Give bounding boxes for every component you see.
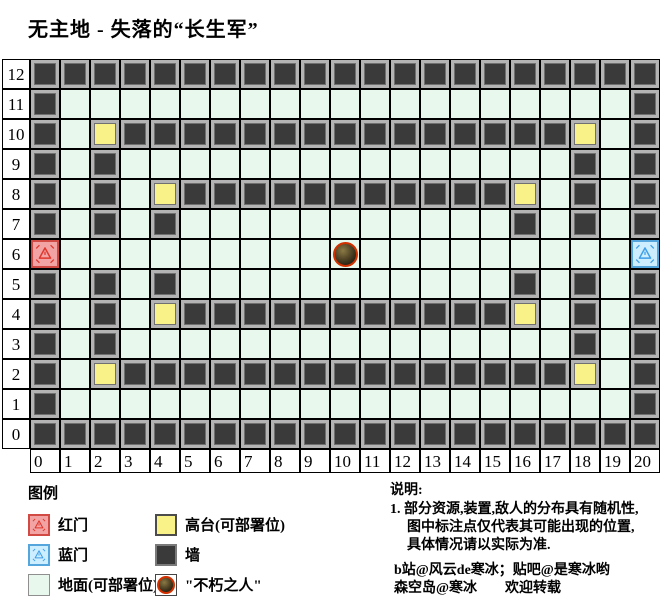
ground-cell xyxy=(210,149,240,179)
ground-cell xyxy=(270,389,300,419)
wall-cell xyxy=(180,179,210,209)
col-label: 2 xyxy=(90,449,120,473)
ground-cell xyxy=(270,209,300,239)
ground-cell xyxy=(300,149,330,179)
ground-cell xyxy=(570,89,600,119)
ground-cell xyxy=(120,329,150,359)
wall-cell xyxy=(510,209,540,239)
col-label: 16 xyxy=(510,449,540,473)
wall-cell xyxy=(90,209,120,239)
ground-cell xyxy=(210,389,240,419)
ground-cell xyxy=(150,239,180,269)
wall-cell xyxy=(180,59,210,89)
legend-heading: 图例 xyxy=(28,482,384,503)
ground-cell xyxy=(120,389,150,419)
legend-item-immortal: "不朽之人" xyxy=(155,570,384,599)
immortal-cell xyxy=(330,239,360,269)
ground-cell xyxy=(540,209,570,239)
wall-cell xyxy=(360,179,390,209)
wall-cell xyxy=(630,59,660,89)
ground-cell xyxy=(150,389,180,419)
credit-line-1: b站@风云de寒冰；贴吧@是寒冰哟 xyxy=(394,562,658,580)
wall-cell xyxy=(360,419,390,449)
ground-cell xyxy=(60,389,90,419)
col-label: 3 xyxy=(120,449,150,473)
row-label: 1 xyxy=(2,389,30,419)
ground-cell xyxy=(180,329,210,359)
ground-cell xyxy=(600,299,630,329)
ground-cell xyxy=(150,329,180,359)
ground-cell xyxy=(240,149,270,179)
wall-cell xyxy=(420,59,450,89)
notes-heading: 说明: xyxy=(390,482,658,500)
wall-cell xyxy=(540,419,570,449)
wall-cell xyxy=(390,359,420,389)
high-swatch xyxy=(155,514,177,536)
wall-cell xyxy=(420,119,450,149)
wall-cell xyxy=(30,269,60,299)
col-label: 0 xyxy=(30,449,60,473)
ground-cell xyxy=(450,149,480,179)
note-line-3: 具体情况请以实际为准. xyxy=(390,537,658,555)
ground-cell xyxy=(240,269,270,299)
wall-cell xyxy=(630,209,660,239)
legend-label: "不朽之人" xyxy=(185,574,262,595)
ground-cell xyxy=(360,209,390,239)
wall-cell xyxy=(360,119,390,149)
credits: b站@风云de寒冰；贴吧@是寒冰哟 森空岛@寒冰 欢迎转载 xyxy=(390,562,658,598)
wall-cell xyxy=(270,419,300,449)
ground-cell xyxy=(60,299,90,329)
legend-item-high: 高台(可部署位) xyxy=(155,510,384,539)
legend-label: 地面(可部署位) xyxy=(58,574,158,595)
wall-cell xyxy=(150,419,180,449)
ground-cell xyxy=(330,149,360,179)
col-label: 5 xyxy=(180,449,210,473)
wall-cell xyxy=(150,269,180,299)
wall-cell xyxy=(420,299,450,329)
ground-cell xyxy=(60,359,90,389)
wall-cell xyxy=(30,119,60,149)
wall-cell xyxy=(540,359,570,389)
col-label: 8 xyxy=(270,449,300,473)
wall-cell xyxy=(630,359,660,389)
wall-cell xyxy=(630,119,660,149)
ground-cell xyxy=(420,239,450,269)
ground-cell xyxy=(210,329,240,359)
wall-cell xyxy=(90,59,120,89)
ground-cell xyxy=(420,389,450,419)
ground-cell xyxy=(240,209,270,239)
ground-cell xyxy=(270,149,300,179)
wall-cell xyxy=(450,359,480,389)
ground-cell xyxy=(600,269,630,299)
wall-cell xyxy=(300,119,330,149)
wall-cell xyxy=(570,329,600,359)
platform-cell xyxy=(510,179,540,209)
ground-cell xyxy=(180,269,210,299)
legend-item-wall: 墙 xyxy=(155,540,384,569)
legend-label: 蓝门 xyxy=(58,544,88,565)
wall-cell xyxy=(240,299,270,329)
wall-cell xyxy=(90,299,120,329)
col-label: 11 xyxy=(360,449,390,473)
wall-cell xyxy=(90,329,120,359)
wall-cell xyxy=(240,59,270,89)
ground-cell xyxy=(120,269,150,299)
wall-cell xyxy=(270,59,300,89)
wall-cell xyxy=(630,149,660,179)
wall-cell xyxy=(330,419,360,449)
legend-items: 红门蓝门地面(可部署位)高台(可部署位)墙"不朽之人" xyxy=(28,510,384,599)
wall-cell xyxy=(180,359,210,389)
wall-cell xyxy=(30,209,60,239)
ground-cell xyxy=(270,89,300,119)
immortal-icon xyxy=(157,576,175,594)
wall-cell xyxy=(570,299,600,329)
wall-cell xyxy=(480,179,510,209)
wall-cell xyxy=(420,419,450,449)
ground-cell xyxy=(450,329,480,359)
wall-cell xyxy=(300,419,330,449)
wall-cell xyxy=(180,119,210,149)
ground-cell xyxy=(270,329,300,359)
ground-cell xyxy=(600,89,630,119)
wall-cell xyxy=(480,359,510,389)
wall-cell xyxy=(570,209,600,239)
col-label: 19 xyxy=(600,449,630,473)
wall-cell xyxy=(570,59,600,89)
wall-cell xyxy=(480,119,510,149)
ground-cell xyxy=(360,389,390,419)
ground-cell xyxy=(600,209,630,239)
ground-cell xyxy=(240,239,270,269)
wall-cell xyxy=(390,419,420,449)
ground-cell xyxy=(60,89,90,119)
ground-cell xyxy=(420,209,450,239)
ground-cell xyxy=(300,329,330,359)
ground-cell xyxy=(540,149,570,179)
wall-cell xyxy=(510,59,540,89)
row-label: 4 xyxy=(2,299,30,329)
wall-cell xyxy=(90,269,120,299)
legend-item-ground: 地面(可部署位) xyxy=(28,570,155,599)
ground-cell xyxy=(180,389,210,419)
ground-cell xyxy=(570,239,600,269)
ground-cell xyxy=(330,329,360,359)
ground-cell xyxy=(450,239,480,269)
row-label: 7 xyxy=(2,209,30,239)
row-label: 10 xyxy=(2,119,30,149)
ground-cell xyxy=(150,149,180,179)
wall-cell xyxy=(360,359,390,389)
wall-cell xyxy=(510,359,540,389)
wall-cell xyxy=(300,59,330,89)
ground-cell xyxy=(60,329,90,359)
ground-cell xyxy=(480,269,510,299)
ground-cell xyxy=(330,269,360,299)
wall-cell xyxy=(360,59,390,89)
ground-cell xyxy=(120,179,150,209)
wall-cell xyxy=(300,359,330,389)
wall-cell xyxy=(330,179,360,209)
legend-label: 高台(可部署位) xyxy=(185,514,285,535)
wall-cell xyxy=(120,359,150,389)
wall-cell xyxy=(390,299,420,329)
col-label: 6 xyxy=(210,449,240,473)
wall-cell xyxy=(210,359,240,389)
ground-cell xyxy=(210,269,240,299)
row-label: 6 xyxy=(2,239,30,269)
ground-cell xyxy=(180,89,210,119)
ground-cell xyxy=(210,89,240,119)
ground-cell xyxy=(180,149,210,179)
wall-cell xyxy=(390,179,420,209)
col-label: 15 xyxy=(480,449,510,473)
wall-cell xyxy=(120,59,150,89)
wall-cell xyxy=(30,59,60,89)
wall-cell xyxy=(240,179,270,209)
ground-cell xyxy=(390,329,420,359)
wall-cell xyxy=(450,419,480,449)
wall-cell xyxy=(60,419,90,449)
col-label: 12 xyxy=(390,449,420,473)
ground-cell xyxy=(510,89,540,119)
ground-cell xyxy=(330,389,360,419)
row-label: 2 xyxy=(2,359,30,389)
blue-door-cell xyxy=(630,239,660,269)
ground-cell xyxy=(210,239,240,269)
ground-cell xyxy=(330,209,360,239)
col-label: 14 xyxy=(450,449,480,473)
ground-cell xyxy=(480,389,510,419)
ground-cell xyxy=(120,209,150,239)
ground-cell xyxy=(360,329,390,359)
wall-cell xyxy=(360,299,390,329)
ground-cell xyxy=(600,359,630,389)
wall-cell xyxy=(150,119,180,149)
wall-cell xyxy=(90,419,120,449)
ground-cell xyxy=(510,149,540,179)
blue-door-triangle-icon xyxy=(632,241,658,267)
wall-cell xyxy=(510,419,540,449)
page-title: 无主地 - 失落的“长生军” xyxy=(28,13,669,42)
ground-cell xyxy=(600,179,630,209)
ground-cell xyxy=(360,269,390,299)
wall-cell xyxy=(450,299,480,329)
ground-cell xyxy=(90,239,120,269)
ground-swatch xyxy=(28,574,50,596)
wall-cell xyxy=(630,89,660,119)
platform-cell xyxy=(90,359,120,389)
map-grid: 1211109876543210012345678910111213141516… xyxy=(2,59,669,473)
wall-cell xyxy=(420,359,450,389)
wall-cell xyxy=(480,59,510,89)
blue-door-swatch xyxy=(28,544,50,566)
wall-cell xyxy=(510,269,540,299)
notes: 说明: 1. 部分资源,装置,敌人的分布具有随机性, 图中标注点仅代表其可能出现… xyxy=(390,482,658,599)
ground-cell xyxy=(420,89,450,119)
ground-cell xyxy=(540,179,570,209)
ground-cell xyxy=(180,209,210,239)
platform-cell xyxy=(510,299,540,329)
wall-cell xyxy=(540,119,570,149)
wall-cell xyxy=(630,329,660,359)
ground-cell xyxy=(270,269,300,299)
wall-cell xyxy=(450,179,480,209)
legend-item-red-door: 红门 xyxy=(28,510,155,539)
wall-cell xyxy=(540,59,570,89)
wall-cell xyxy=(150,59,180,89)
bottom-section: 图例 红门蓝门地面(可部署位)高台(可部署位)墙"不朽之人" 说明: 1. 部分… xyxy=(28,482,658,599)
wall-cell xyxy=(30,179,60,209)
ground-cell xyxy=(600,239,630,269)
ground-cell xyxy=(450,89,480,119)
axis-corner xyxy=(2,449,30,473)
red-door-triangle-icon xyxy=(30,515,48,535)
wall-cell xyxy=(30,149,60,179)
wall-cell xyxy=(120,419,150,449)
wall-cell xyxy=(210,119,240,149)
ground-cell xyxy=(510,329,540,359)
ground-cell xyxy=(480,329,510,359)
ground-cell xyxy=(90,89,120,119)
ground-cell xyxy=(420,149,450,179)
row-label: 0 xyxy=(2,419,30,449)
ground-cell xyxy=(480,239,510,269)
red-door-swatch xyxy=(28,514,50,536)
ground-cell xyxy=(120,149,150,179)
ground-cell xyxy=(540,389,570,419)
ground-cell xyxy=(300,389,330,419)
legend-label: 墙 xyxy=(185,544,200,565)
ground-cell xyxy=(300,269,330,299)
ground-cell xyxy=(330,89,360,119)
wall-cell xyxy=(240,119,270,149)
wall-cell xyxy=(570,179,600,209)
wall-cell xyxy=(630,269,660,299)
col-label: 7 xyxy=(240,449,270,473)
red-door-cell xyxy=(30,239,60,269)
ground-cell xyxy=(540,329,570,359)
ground-cell xyxy=(450,389,480,419)
wall-cell xyxy=(120,119,150,149)
wall-cell xyxy=(600,419,630,449)
row-label: 9 xyxy=(2,149,30,179)
ground-cell xyxy=(420,269,450,299)
ground-cell xyxy=(90,389,120,419)
wall-cell xyxy=(180,419,210,449)
ground-cell xyxy=(360,149,390,179)
wall-cell xyxy=(270,359,300,389)
ground-cell xyxy=(180,239,210,269)
ground-cell xyxy=(480,149,510,179)
col-label: 1 xyxy=(60,449,90,473)
wall-cell xyxy=(420,179,450,209)
row-label: 11 xyxy=(2,89,30,119)
legend-label: 红门 xyxy=(58,514,88,535)
ground-cell xyxy=(450,269,480,299)
col-label: 9 xyxy=(300,449,330,473)
ground-cell xyxy=(60,269,90,299)
wall-cell xyxy=(630,389,660,419)
wall-cell xyxy=(330,59,360,89)
wall-cell xyxy=(150,209,180,239)
col-label: 10 xyxy=(330,449,360,473)
ground-cell xyxy=(390,89,420,119)
ground-cell xyxy=(300,209,330,239)
credit-line-2: 森空岛@寒冰 欢迎转载 xyxy=(394,580,658,598)
wall-cell xyxy=(330,119,360,149)
row-label: 3 xyxy=(2,329,30,359)
wall-cell xyxy=(390,59,420,89)
ground-cell xyxy=(240,89,270,119)
wall-cell xyxy=(30,359,60,389)
ground-cell xyxy=(420,329,450,359)
ground-cell xyxy=(480,209,510,239)
wall-cell xyxy=(480,299,510,329)
wall-cell xyxy=(390,119,420,149)
wall-cell xyxy=(210,299,240,329)
wall-cell xyxy=(630,299,660,329)
wall-cell xyxy=(30,419,60,449)
ground-cell xyxy=(360,239,390,269)
wall-cell xyxy=(240,359,270,389)
legend: 图例 红门蓝门地面(可部署位)高台(可部署位)墙"不朽之人" xyxy=(28,482,384,599)
ground-cell xyxy=(540,239,570,269)
ground-cell xyxy=(60,179,90,209)
ground-cell xyxy=(600,149,630,179)
ground-cell xyxy=(120,89,150,119)
wall-cell xyxy=(330,359,360,389)
ground-cell xyxy=(390,269,420,299)
ground-cell xyxy=(600,329,630,359)
wall-cell xyxy=(210,179,240,209)
col-label: 17 xyxy=(540,449,570,473)
legend-item-blue-door: 蓝门 xyxy=(28,540,155,569)
ground-cell xyxy=(540,89,570,119)
wall-cell xyxy=(270,119,300,149)
row-label: 12 xyxy=(2,59,30,89)
platform-cell xyxy=(570,359,600,389)
ground-cell xyxy=(60,209,90,239)
wall-cell xyxy=(30,389,60,419)
ground-cell xyxy=(600,389,630,419)
ground-cell xyxy=(360,89,390,119)
ground-cell xyxy=(390,209,420,239)
wall-cell xyxy=(60,59,90,89)
wall-cell xyxy=(240,419,270,449)
ground-cell xyxy=(120,239,150,269)
col-label: 4 xyxy=(150,449,180,473)
col-label: 20 xyxy=(630,449,660,473)
ground-cell xyxy=(540,299,570,329)
wall-cell xyxy=(570,149,600,179)
row-label: 8 xyxy=(2,179,30,209)
wall-cell xyxy=(570,269,600,299)
wall-cell xyxy=(210,419,240,449)
wall-cell xyxy=(30,329,60,359)
ground-cell xyxy=(300,89,330,119)
wall-cell xyxy=(330,299,360,329)
immortal-swatch xyxy=(155,574,177,596)
wall-swatch xyxy=(155,544,177,566)
ground-cell xyxy=(150,89,180,119)
wall-cell xyxy=(90,179,120,209)
wall-cell xyxy=(90,149,120,179)
note-line-1: 1. 部分资源,装置,敌人的分布具有随机性, xyxy=(390,501,658,519)
note-line-2: 图中标注点仅代表其可能出现的位置, xyxy=(390,519,658,537)
